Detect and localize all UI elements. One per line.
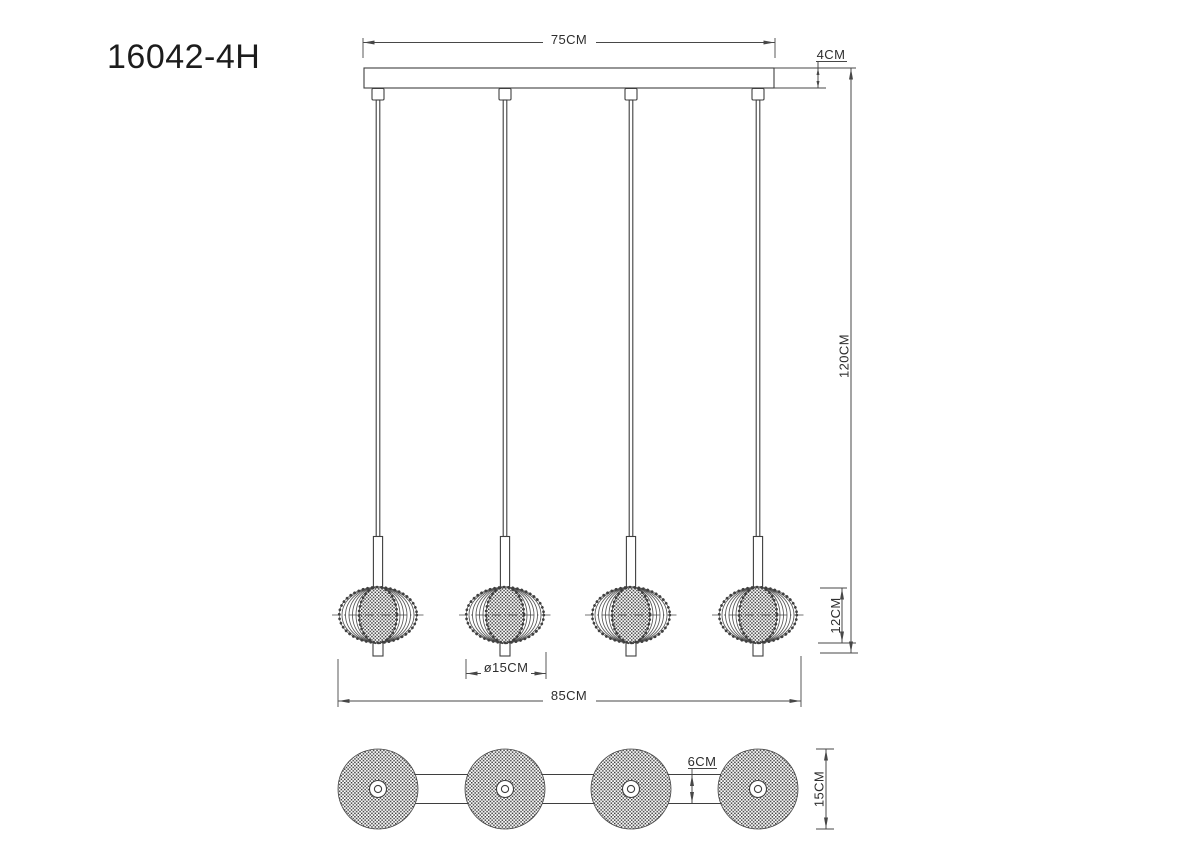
dim-overall-width: 85CM bbox=[338, 656, 801, 707]
shade-bottom-4 bbox=[718, 749, 798, 829]
overall-width-label: 85CM bbox=[551, 688, 587, 703]
bar-depth-label: 6CM bbox=[688, 754, 717, 769]
dim-canopy-height: 4CM bbox=[774, 47, 856, 88]
dim-canopy-width: 75CM bbox=[363, 32, 775, 58]
dim-bottom-shade-diameter: 15CM bbox=[812, 749, 835, 829]
shade-height-label: 12CM bbox=[828, 597, 843, 633]
bottom-view: 6CM 15CM bbox=[338, 749, 834, 829]
drop-height-label: 120CM bbox=[837, 334, 852, 378]
canopy-width-label: 75CM bbox=[551, 32, 587, 47]
dim-bar-depth: 6CM bbox=[688, 754, 717, 803]
front-view: 75CM 4CM 120CM 12CM bbox=[332, 32, 858, 707]
pendant-3 bbox=[585, 89, 677, 657]
dim-shade-height: 12CM bbox=[818, 588, 856, 643]
technical-drawing-page: 16042-4H 75CM 4CM 120 bbox=[0, 0, 1200, 848]
pendant-4 bbox=[712, 89, 804, 657]
canopy-bar bbox=[364, 68, 774, 88]
shade-bottom-2 bbox=[465, 749, 545, 829]
pendant-lamp-technical-drawing: 16042-4H 75CM 4CM 120 bbox=[0, 0, 1200, 848]
pendant-1 bbox=[332, 89, 424, 657]
bottom-shade-diameter-label: 15CM bbox=[812, 771, 827, 807]
dim-drop-height: 120CM bbox=[820, 69, 858, 654]
shade-diameter-label: ø15CM bbox=[484, 660, 529, 675]
shade-bottom-1 bbox=[338, 749, 418, 829]
shade-bottom-3 bbox=[591, 749, 671, 829]
canopy-height-label: 4CM bbox=[817, 47, 846, 62]
pendant-2 bbox=[459, 89, 551, 657]
model-number-label: 16042-4H bbox=[107, 38, 260, 76]
